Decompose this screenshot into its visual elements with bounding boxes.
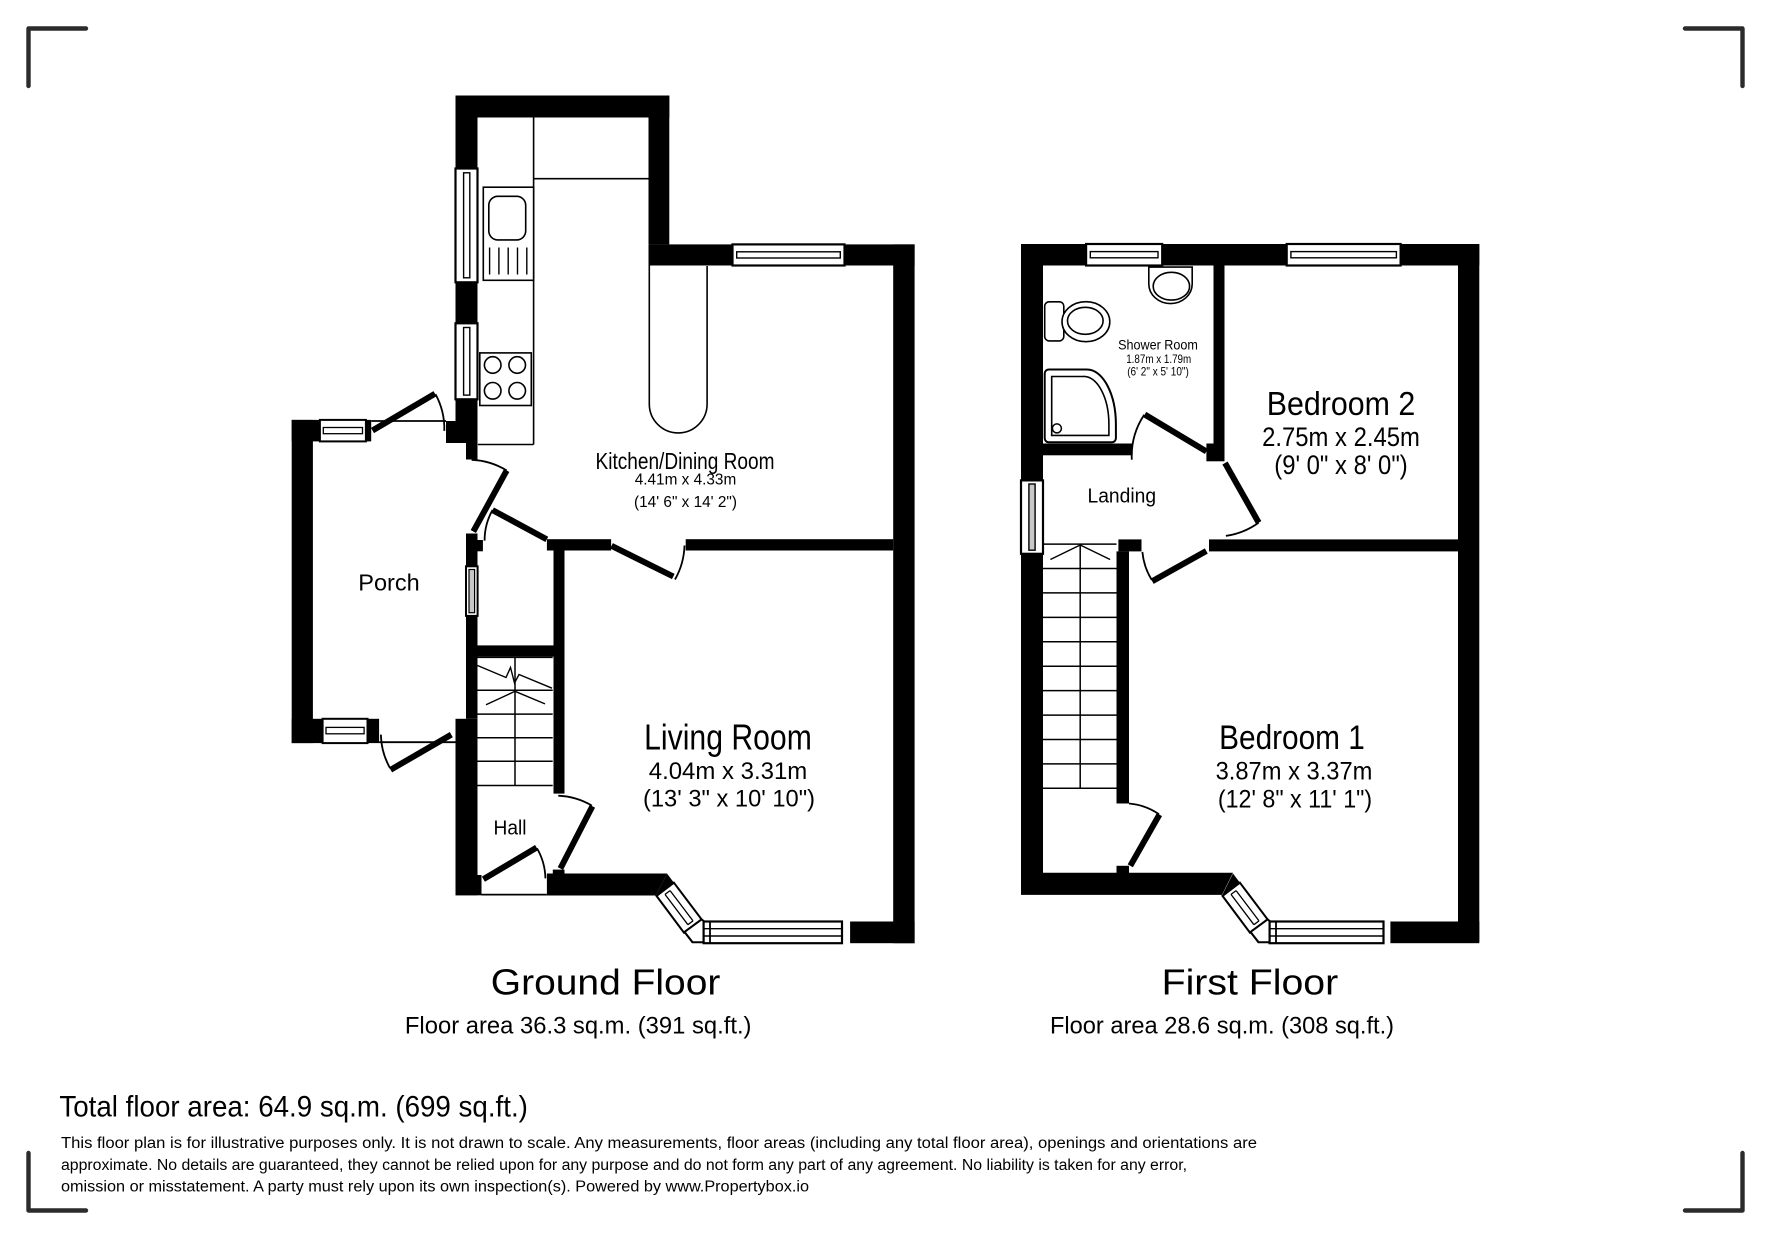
svg-text:First Floor: First Floor	[1162, 962, 1339, 1003]
svg-text:Total floor area: 64.9 sq.m. (: Total floor area: 64.9 sq.m. (699 sq.ft.…	[59, 1090, 528, 1123]
svg-text:omission or misstatement. A pa: omission or misstatement. A party must r…	[61, 1178, 809, 1195]
svg-text:(6' 2" x 5' 10"): (6' 2" x 5' 10")	[1127, 364, 1189, 378]
svg-text:approximate. No details are gu: approximate. No details are guaranteed, …	[61, 1157, 1187, 1174]
svg-text:Floor area 28.6 sq.m. (308 sq.: Floor area 28.6 sq.m. (308 sq.ft.)	[1050, 1013, 1394, 1040]
svg-text:Hall: Hall	[494, 818, 527, 840]
svg-text:Shower Room: Shower Room	[1118, 337, 1198, 353]
svg-text:(14' 6" x 14' 2"): (14' 6" x 14' 2")	[634, 494, 737, 511]
svg-text:This floor plan is for illustr: This floor plan is for illustrative purp…	[61, 1135, 1257, 1152]
svg-text:2.75m x 2.45m: 2.75m x 2.45m	[1262, 422, 1420, 452]
svg-text:Living Room: Living Room	[644, 717, 812, 758]
svg-text:Bedroom 1: Bedroom 1	[1219, 719, 1365, 757]
svg-text:(9' 0" x 8' 0"): (9' 0" x 8' 0")	[1274, 450, 1408, 480]
svg-text:(12' 8" x 11' 1"): (12' 8" x 11' 1")	[1218, 786, 1372, 814]
svg-text:Bedroom 2: Bedroom 2	[1267, 385, 1416, 422]
svg-text:Porch: Porch	[358, 570, 419, 596]
svg-text:4.04m x 3.31m: 4.04m x 3.31m	[649, 758, 808, 785]
svg-text:Floor area 36.3 sq.m. (391 sq.: Floor area 36.3 sq.m. (391 sq.ft.)	[405, 1013, 752, 1040]
svg-text:Kitchen/Dining Room: Kitchen/Dining Room	[596, 448, 775, 474]
svg-text:(13' 3" x 10' 10"): (13' 3" x 10' 10")	[643, 786, 815, 813]
svg-text:3.87m x 3.37m: 3.87m x 3.37m	[1216, 758, 1373, 786]
svg-text:4.41m x 4.33m: 4.41m x 4.33m	[635, 471, 737, 488]
svg-text:Ground Floor: Ground Floor	[491, 962, 721, 1003]
svg-text:Landing: Landing	[1088, 485, 1157, 508]
